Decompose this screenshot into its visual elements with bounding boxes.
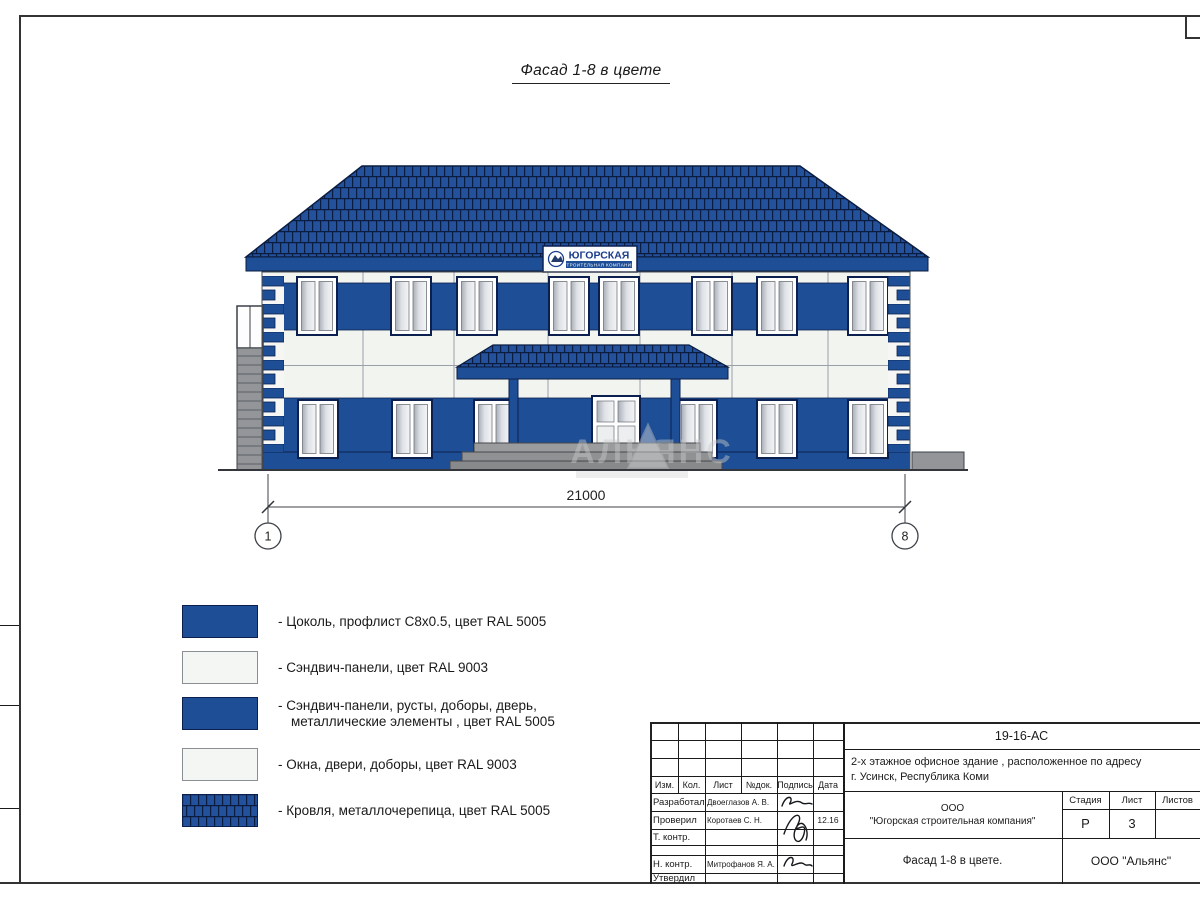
window: [757, 277, 797, 335]
window: [848, 400, 888, 458]
tb-role: Утвердил: [653, 873, 705, 884]
sign-subtitle: СТРОИТЕЛЬНАЯ КОМПАНИЯ: [563, 263, 635, 268]
axis-label-1: 1: [265, 530, 272, 544]
window: [298, 400, 338, 458]
signatures: [778, 790, 816, 882]
window: [692, 277, 732, 335]
tb-header-data: Дата: [813, 776, 843, 793]
dimension-group: 21000 1 8: [255, 474, 918, 549]
legend-item: - Сэндвич-панели, цвет RAL 9003: [182, 651, 488, 684]
tb-date: 12.16: [813, 811, 843, 829]
legend-swatch-white: [182, 651, 258, 684]
legend-label: - Сэндвич-панели, русты, доборы, дверь, …: [278, 698, 555, 730]
drawing-sheet: Фасад 1-8 в цвете: [0, 0, 1200, 900]
tb-stage-label: Стадия: [1062, 791, 1109, 809]
corner-quoins-right: [888, 274, 910, 452]
titleblock-border: [650, 722, 652, 884]
axis-label-8: 8: [902, 530, 909, 544]
legend-swatch-roof: [182, 794, 258, 827]
tb-project-name: 2-х этажное офисное здание , расположенн…: [843, 749, 1200, 791]
window: [392, 400, 432, 458]
window: [599, 277, 639, 335]
corner-quoins-left: [262, 274, 284, 452]
tb-sheets-label: Листов: [1155, 791, 1200, 809]
titleblock-hline: [651, 740, 843, 741]
tb-header-ndok: №док.: [741, 776, 777, 793]
titleblock-hline: [651, 758, 843, 759]
tb-name: Двоеглазов А. В.: [707, 793, 777, 811]
tb-company: ООО "Югорская строительная компания": [843, 791, 1062, 838]
watermark: АЛЬЯНС: [570, 424, 734, 478]
window: [457, 277, 497, 335]
titleblock-vline: [705, 722, 706, 884]
legend-swatch-white: [182, 748, 258, 781]
side-pad: [912, 452, 964, 470]
tb-sheet-label: Лист: [1109, 791, 1155, 809]
tb-doc-number: 19-16-АС: [843, 722, 1200, 749]
tb-role: Н. контр.: [653, 855, 705, 873]
tb-role: Проверил: [653, 811, 705, 829]
tb-role: Т. контр.: [653, 829, 705, 845]
signature-scribble: [784, 815, 807, 841]
legend-label: - Цоколь, профлист С8х0.5, цвет RAL 5005: [278, 614, 546, 630]
tb-name: Митрофанов Я. А.: [707, 855, 777, 873]
signature-scribble: [784, 858, 812, 867]
tb-sheet-value: 3: [1109, 809, 1155, 838]
legend-label: - Сэндвич-панели, цвет RAL 9003: [278, 660, 488, 676]
legend-swatch-blue: [182, 605, 258, 638]
sign-name: ЮГОРСКАЯ: [569, 250, 630, 262]
tb-contractor: ООО "Альянс": [1062, 838, 1200, 884]
fire-escape-ladder: [237, 306, 263, 470]
signature-scribble: [782, 797, 812, 806]
legend-item: - Сэндвич-панели, русты, доборы, дверь, …: [182, 697, 555, 730]
window: [391, 277, 431, 335]
window: [297, 277, 337, 335]
company-sign: ЮГОРСКАЯ СТРОИТЕЛЬНАЯ КОМПАНИЯ: [543, 246, 637, 272]
dimension-value: 21000: [567, 487, 606, 503]
tb-role: Разработал: [653, 793, 705, 811]
tb-header-list: Лист: [705, 776, 741, 793]
legend-swatch-blue: [182, 697, 258, 730]
legend-item: - Окна, двери, доборы, цвет RAL 9003: [182, 748, 517, 781]
window: [549, 277, 589, 335]
tb-header-izm: Изм.: [651, 776, 678, 793]
tb-name: Коротаев С. Н.: [707, 811, 777, 829]
window: [848, 277, 888, 335]
legend-item: - Кровля, металлочерепица, цвет RAL 5005: [182, 794, 550, 827]
legend-label: - Кровля, металлочерепица, цвет RAL 5005: [278, 803, 550, 819]
tb-header-kol: Кол.: [678, 776, 705, 793]
tb-sheet-title: Фасад 1-8 в цвете.: [843, 838, 1062, 884]
tb-stage-value: Р: [1062, 809, 1109, 838]
window: [757, 400, 797, 458]
legend-label: - Окна, двери, доборы, цвет RAL 9003: [278, 757, 517, 773]
tb-sheets-value: [1155, 809, 1200, 838]
legend-item: - Цоколь, профлист С8х0.5, цвет RAL 5005: [182, 605, 546, 638]
